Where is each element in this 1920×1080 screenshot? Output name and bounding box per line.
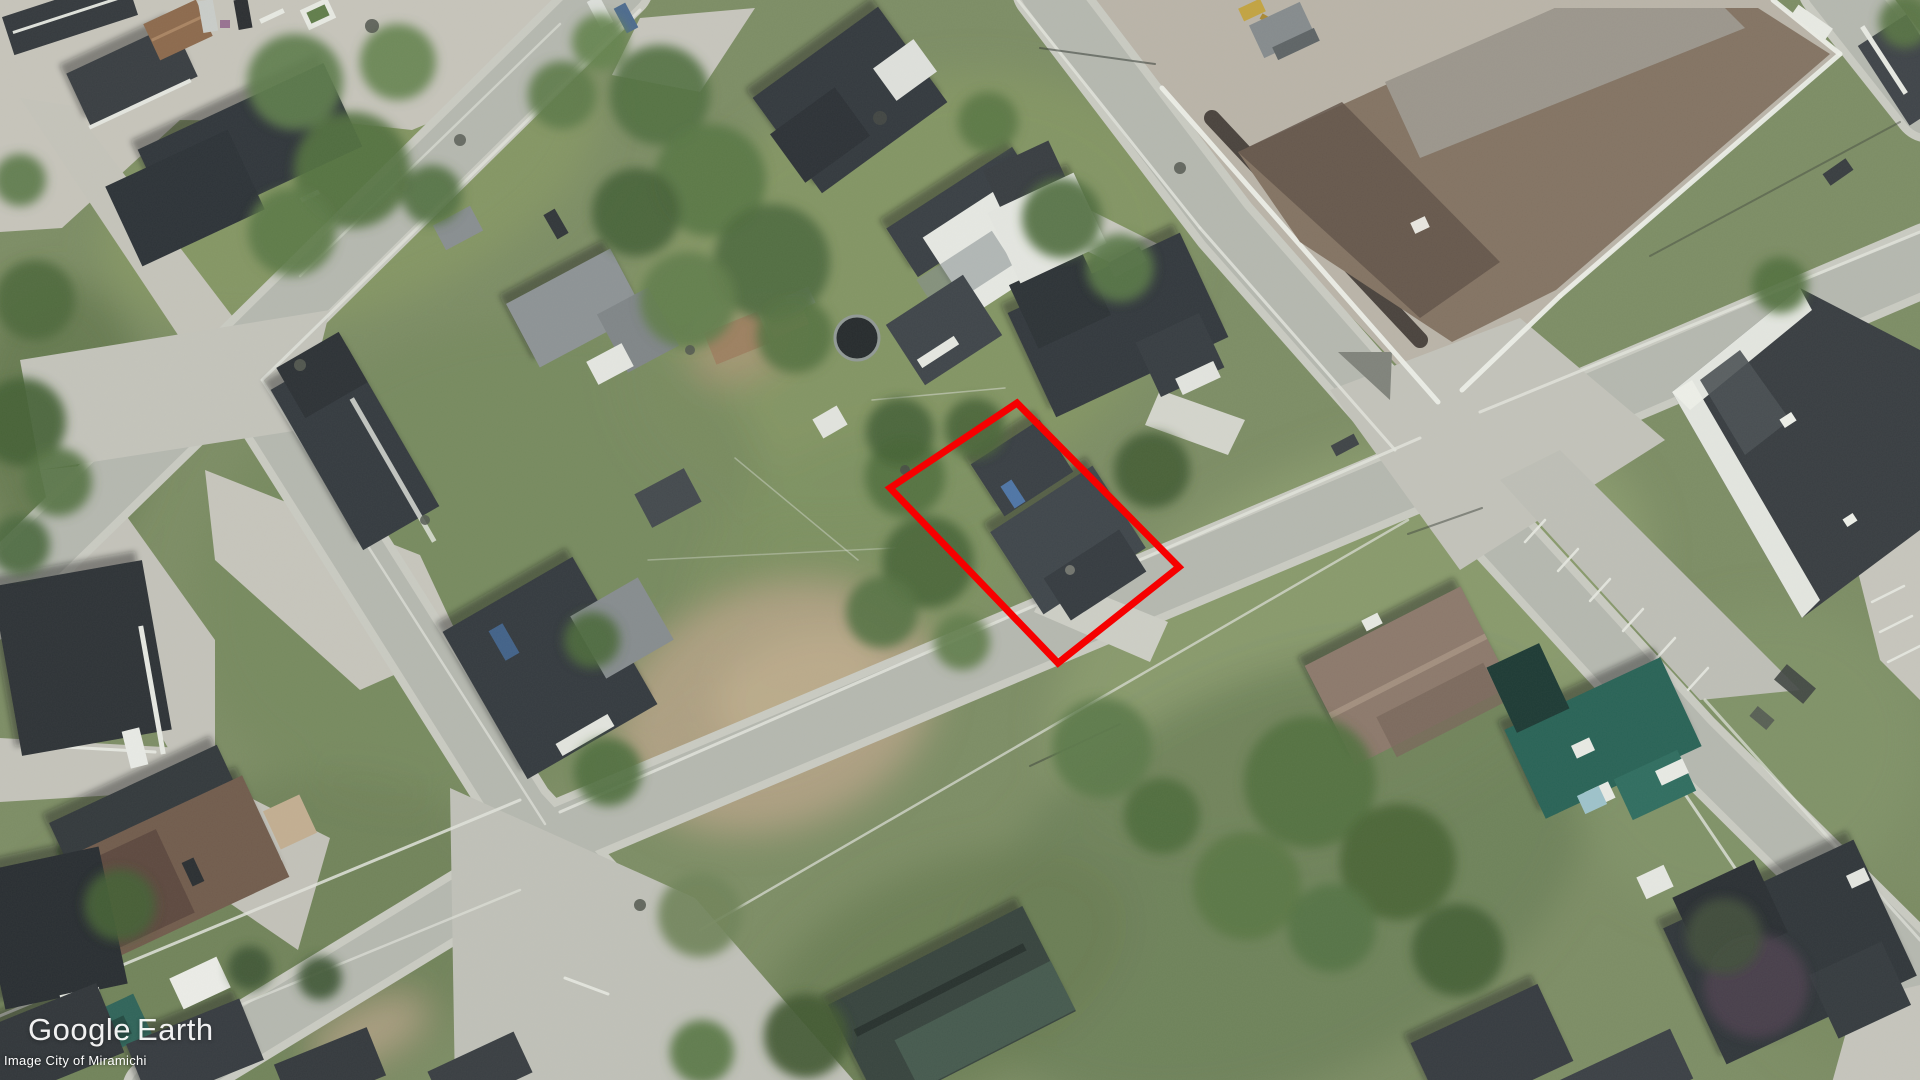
google-earth-viewport[interactable]: GoogleEarth Image City of Miramichi bbox=[0, 0, 1920, 1080]
aerial-imagery bbox=[0, 0, 1920, 1080]
google-earth-logo: GoogleEarth bbox=[28, 1012, 214, 1048]
imagery-attribution: Image City of Miramichi bbox=[4, 1053, 147, 1068]
image-grain bbox=[0, 0, 1920, 1080]
logo-earth: Earth bbox=[137, 1012, 214, 1047]
logo-google: Google bbox=[28, 1012, 131, 1047]
